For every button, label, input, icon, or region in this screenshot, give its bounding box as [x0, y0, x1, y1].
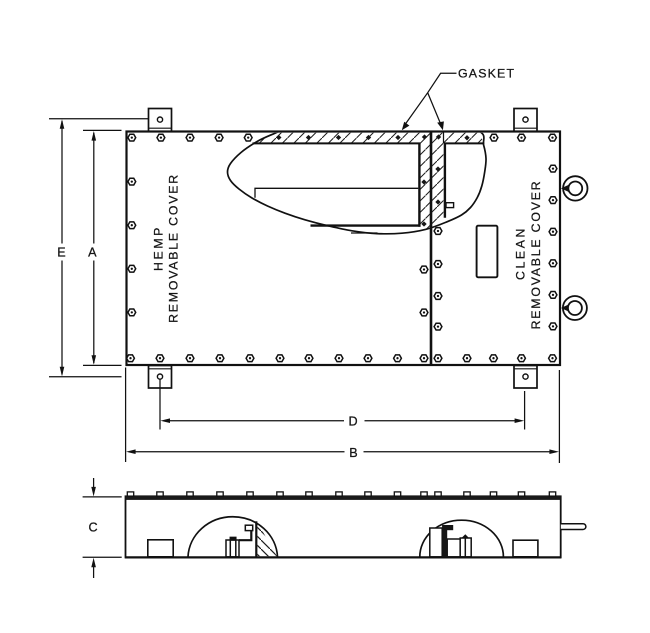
svg-text:D: D: [348, 415, 357, 429]
svg-text:E: E: [57, 246, 65, 260]
svg-text:B: B: [349, 446, 357, 460]
svg-text:C: C: [88, 520, 97, 534]
svg-text:REMOVABLE COVER: REMOVABLE COVER: [167, 173, 181, 323]
svg-text:REMOVABLE COVER: REMOVABLE COVER: [529, 180, 543, 330]
svg-text:A: A: [88, 246, 97, 260]
svg-text:HEMP: HEMP: [151, 225, 165, 271]
svg-text:GASKET: GASKET: [458, 67, 515, 81]
svg-text:CLEAN: CLEAN: [514, 226, 528, 280]
